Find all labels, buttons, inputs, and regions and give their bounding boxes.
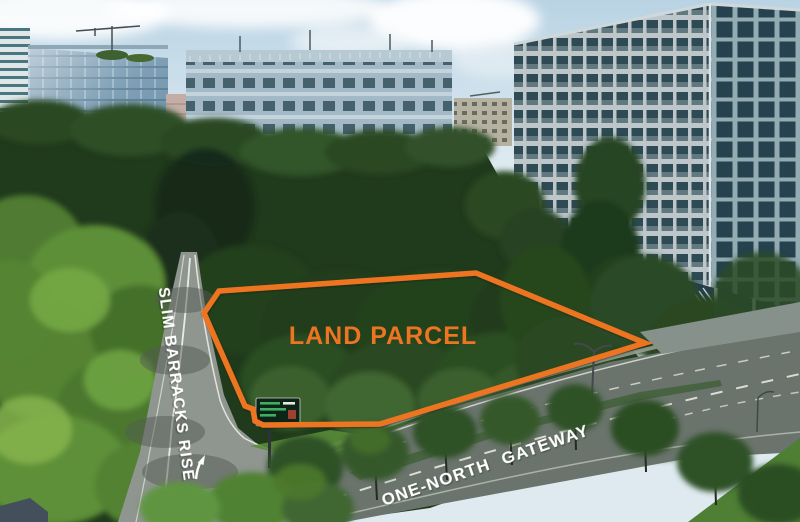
land-parcel-label: LAND PARCEL <box>289 322 477 350</box>
aerial-site-photo: LAND PARCEL SLIM BARRACKS RISE ONE-NORTH… <box>0 0 800 522</box>
